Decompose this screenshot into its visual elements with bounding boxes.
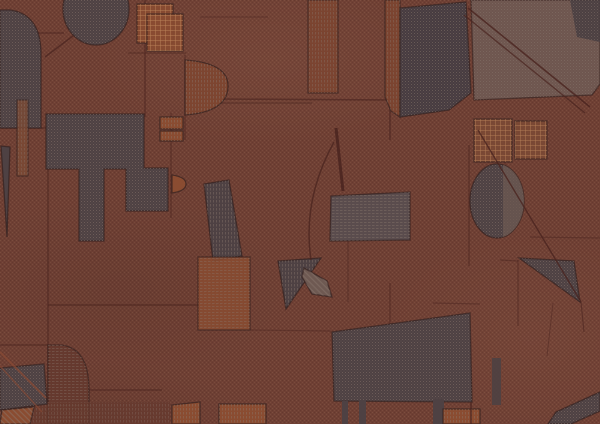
top-panel-a-texture — [308, 0, 338, 93]
rust-square-b-texture — [147, 14, 183, 51]
rust-bar-left-texture — [17, 100, 28, 176]
gray-band-shape-texture — [330, 192, 410, 241]
side-bar — [492, 358, 501, 405]
pentagon-shape-texture — [400, 2, 471, 117]
fabric-pattern-photo — [0, 0, 600, 424]
fabric-pattern-image — [0, 0, 600, 424]
table-leg-a — [342, 401, 348, 424]
rust-square-mid-texture — [198, 257, 250, 330]
small-tab-b-texture — [160, 131, 183, 141]
bottom-left-poly-texture — [0, 364, 47, 410]
seam-line-3 — [213, 99, 389, 100]
bottom-rust-b-texture — [219, 404, 266, 424]
grid-square-b-texture — [515, 121, 547, 159]
top-panel-b-texture — [385, 0, 400, 117]
rust-patch-br-texture — [443, 409, 480, 424]
small-tab-a-texture — [160, 117, 183, 129]
bottom-rust-a-texture — [172, 402, 200, 424]
table-leg-b — [359, 400, 366, 424]
